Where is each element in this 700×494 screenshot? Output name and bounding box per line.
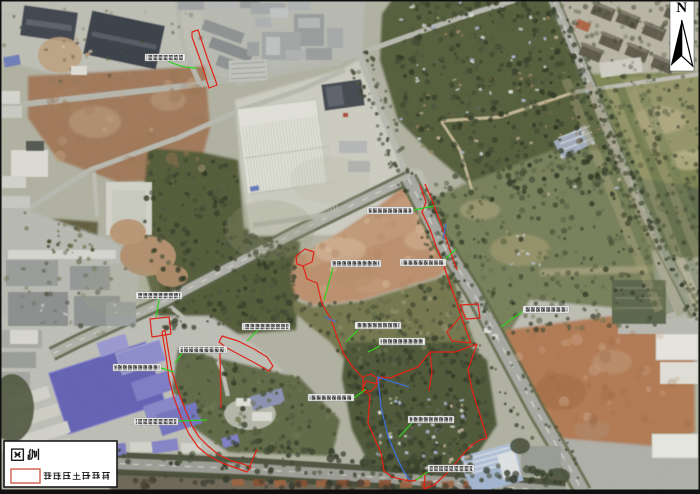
- svg-text:N: N: [676, 0, 687, 16]
